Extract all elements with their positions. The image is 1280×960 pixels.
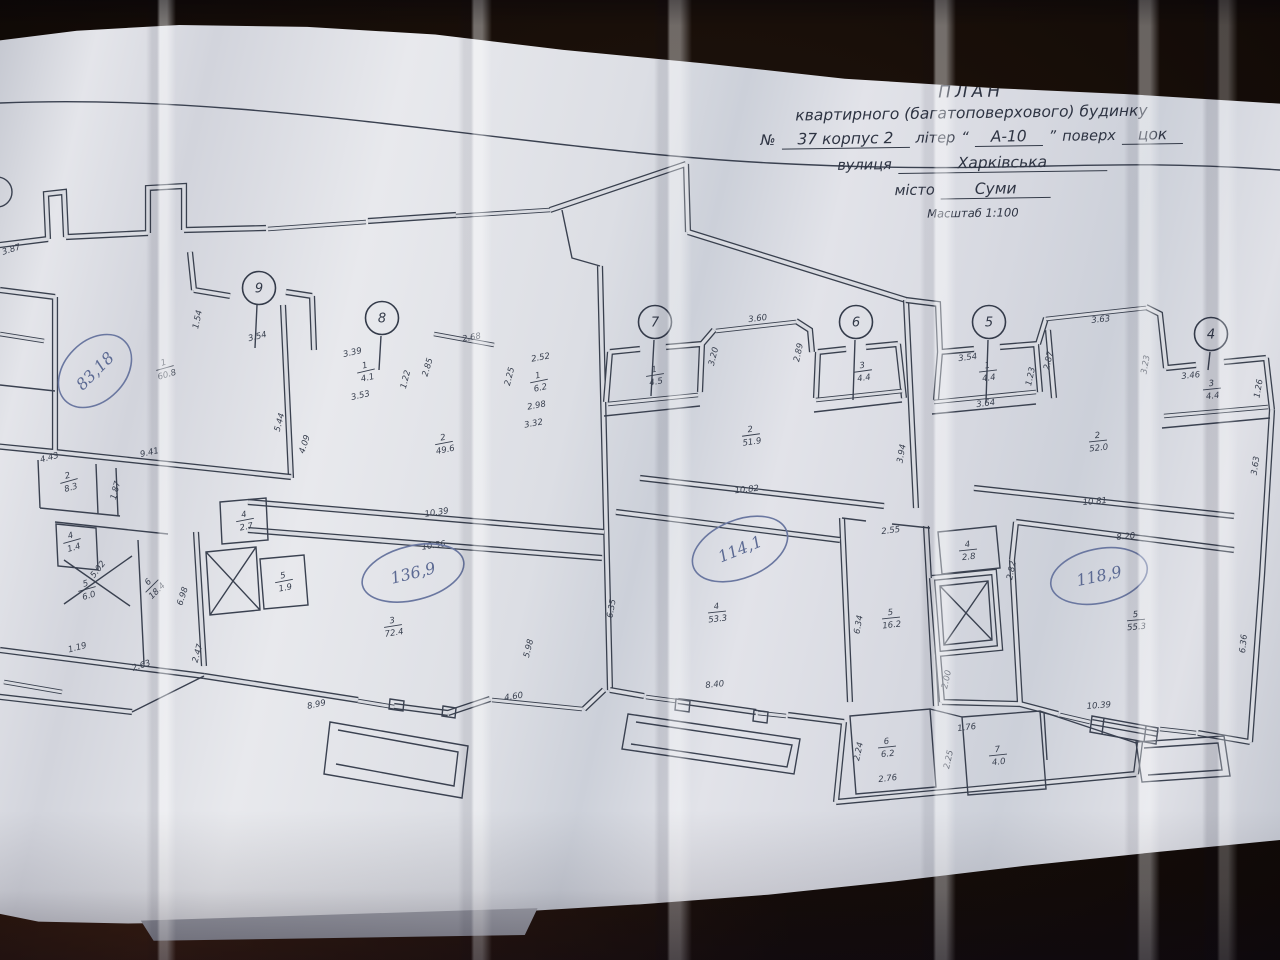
room-label: 372.4 (382, 615, 404, 640)
dimension-label: 3.46 (1181, 370, 1201, 382)
floor-value: цок (1122, 125, 1184, 145)
svg-text:4: 4 (713, 602, 719, 613)
room-label: 14.5 (645, 364, 666, 389)
room-label: 14.4 (978, 360, 999, 385)
svg-text:2: 2 (747, 425, 754, 436)
dimension-label: 3.63 (1250, 456, 1263, 476)
dimension-label: 3.23 (1139, 354, 1152, 374)
windows (0, 210, 1268, 733)
room-label: 42.7 (234, 508, 256, 534)
dimension-label: 9.41 (139, 446, 160, 460)
svg-text:8.3: 8.3 (63, 482, 79, 495)
svg-text:1: 1 (534, 371, 541, 382)
dimension-label: 3.94 (895, 443, 908, 463)
dimension-label: 5.98 (522, 638, 536, 659)
paper-sheet: 3.871.543.545.444.099.414.431.873.393.53… (0, 0, 1280, 960)
liter-value: А-10 (975, 127, 1043, 147)
room-label: 14.1 (355, 359, 378, 385)
axis-circle: 8 (366, 302, 399, 335)
svg-text:6: 6 (852, 316, 860, 331)
svg-text:5: 5 (887, 608, 893, 619)
svg-text:55.3: 55.3 (1127, 622, 1147, 634)
dimension-label: 8.99 (306, 698, 327, 712)
dimension-label: 2.89 (792, 342, 806, 363)
svg-text:6.2: 6.2 (881, 749, 896, 760)
dimension-label: 1.26 (1252, 378, 1265, 399)
axis-circle: 5 (973, 306, 1006, 339)
dimension-label: 6.34 (852, 614, 865, 634)
room-label: 42.8 (958, 539, 978, 563)
room-label: 516.2 (881, 607, 902, 631)
windows (0, 210, 1268, 733)
dimension-label: 2.24 (852, 741, 866, 762)
plan-subtitle: квартирного (багатоповерхового) будинку (741, 101, 1201, 125)
dimension-label: 6.36 (1238, 633, 1250, 653)
room-label: 51.9 (273, 569, 295, 595)
dimension-label: 3.32 (523, 417, 543, 430)
liter-quote-close: ” (1049, 129, 1057, 145)
street-value: Харківська (898, 152, 1108, 174)
dimension-label: 3.63 (1091, 314, 1111, 326)
svg-text:2: 2 (1094, 431, 1100, 442)
axis-circle: 9 (243, 272, 276, 305)
dimension-label: 2.85 (421, 357, 436, 378)
dimension-label: 8.40 (705, 679, 725, 691)
number-line: № 37 корпус 2 літер “ А-10 ” поверх цок (742, 125, 1202, 150)
photo-of-floor-plan: { "title_block": { "line1": "ПЛАН", "lin… (0, 0, 1280, 960)
axis-circle-partial (0, 177, 12, 207)
room-label: 618.4 (138, 572, 167, 601)
handwritten-total: 118,9 (1045, 539, 1152, 612)
svg-text:4.4: 4.4 (857, 373, 872, 385)
handwritten-total: 114,1 (683, 503, 797, 594)
dimension-label: 10.39 (1086, 700, 1111, 712)
svg-text:49.6: 49.6 (435, 444, 456, 458)
svg-text:7: 7 (651, 316, 660, 331)
room-label: 249.6 (433, 431, 456, 457)
dimension-label: 5.44 (273, 412, 288, 433)
svg-text:3: 3 (389, 616, 396, 627)
title-block: ПЛАН квартирного (багатоповерхового) буд… (741, 79, 1203, 223)
room-label: 555.3 (1126, 609, 1147, 633)
svg-text:6.2: 6.2 (533, 382, 548, 395)
street-line: вулиця Харківська (742, 151, 1202, 176)
room-label: 34.4 (1202, 378, 1222, 402)
street-label: вулиця (837, 157, 892, 174)
dimension-label: 2.25 (503, 366, 517, 387)
dimension-label: 2.52 (530, 351, 550, 364)
floor-label: поверх (1062, 128, 1116, 145)
city-value: Суми (941, 179, 1051, 200)
dimension-label: 2.25 (942, 749, 956, 770)
svg-text:8: 8 (378, 312, 386, 327)
svg-text:1: 1 (651, 365, 658, 376)
svg-text:6.0: 6.0 (81, 590, 97, 603)
dimension-label: 2.55 (881, 525, 901, 537)
room-label: 453.3 (707, 601, 728, 625)
liter-quote-open: “ (961, 130, 969, 146)
svg-text:2.8: 2.8 (962, 552, 977, 563)
dimension-label: 4.09 (297, 434, 312, 455)
room-label: 34.4 (853, 360, 874, 385)
svg-text:1: 1 (361, 361, 369, 372)
svg-text:3: 3 (859, 361, 866, 372)
dimension-label: 2.98 (526, 399, 547, 413)
svg-text:4.1: 4.1 (360, 372, 375, 385)
svg-text:118,9: 118,9 (1075, 562, 1124, 590)
svg-text:136,9: 136,9 (388, 558, 437, 588)
svg-text:5: 5 (1132, 610, 1138, 620)
svg-text:1: 1 (160, 358, 168, 369)
svg-text:2: 2 (64, 471, 72, 482)
axis-circle: 6 (840, 306, 873, 339)
svg-text:4: 4 (240, 510, 247, 521)
dimension-label: 6.35 (605, 598, 618, 618)
axis-circle: 7 (639, 306, 672, 339)
dimension-label: 10.81 (1082, 496, 1107, 508)
svg-text:5: 5 (82, 579, 90, 590)
svg-text:6: 6 (883, 737, 890, 748)
dimension-label: 3.20 (707, 346, 721, 367)
svg-text:83,18: 83,18 (72, 348, 118, 394)
svg-text:4.5: 4.5 (649, 376, 664, 388)
svg-text:4: 4 (964, 540, 970, 551)
dimension-label: 3.54 (958, 352, 978, 364)
dimension-label: 1.54 (191, 309, 205, 330)
dimension-label: 5.02 (89, 559, 109, 580)
svg-text:52.0: 52.0 (1089, 442, 1109, 454)
dimension-label: 2.82 (1005, 560, 1019, 581)
svg-text:4.4: 4.4 (982, 373, 997, 385)
svg-text:53.3: 53.3 (708, 613, 728, 625)
svg-text:4: 4 (67, 531, 75, 542)
dimension-label: 3.54 (247, 330, 268, 344)
svg-text:2: 2 (439, 433, 446, 444)
svg-text:9: 9 (255, 282, 263, 297)
room-label: 28.3 (58, 469, 82, 496)
svg-text:4: 4 (1207, 328, 1215, 343)
svg-text:16.2: 16.2 (882, 619, 902, 631)
room-label: 66.2 (877, 736, 897, 760)
svg-text:4.4: 4.4 (1206, 391, 1221, 402)
room-label: 74.0 (988, 744, 1008, 768)
svg-text:4.0: 4.0 (992, 757, 1007, 768)
number-label: № (760, 133, 775, 149)
liter-label: літер (915, 130, 955, 147)
dimension-label: 8.20 (1116, 531, 1136, 543)
svg-text:1.4: 1.4 (66, 542, 82, 555)
room-label: 252.0 (1088, 430, 1109, 454)
room-label: 41.4 (61, 529, 85, 556)
handwritten-total: 83,18 (44, 320, 146, 422)
city-label: місто (894, 183, 934, 200)
dimension-label: 6.98 (175, 585, 191, 607)
svg-text:114,1: 114,1 (715, 532, 765, 567)
walls (0, 164, 1272, 802)
dimension-label: 2.76 (878, 773, 899, 785)
building-number-value: 37 корпус 2 (781, 129, 909, 150)
svg-text:6: 6 (143, 577, 154, 588)
room-label: 251.9 (740, 424, 762, 449)
svg-text:7: 7 (994, 745, 1001, 756)
dimension-label: 1.22 (399, 369, 413, 390)
svg-text:1.9: 1.9 (278, 582, 293, 594)
svg-text:51.9: 51.9 (742, 436, 762, 449)
dimension-label: 3.39 (342, 346, 363, 360)
dimension-label: 1.19 (67, 641, 88, 656)
dimension-label: 1.23 (1024, 366, 1038, 387)
svg-text:1: 1 (984, 361, 991, 372)
room-label: 160.8 (153, 356, 178, 383)
svg-text:5: 5 (279, 571, 286, 582)
city-line: місто Суми (742, 177, 1202, 202)
svg-text:3: 3 (1208, 379, 1214, 390)
dimension-label: 3.53 (350, 389, 371, 403)
room-label: 16.2 (528, 369, 550, 395)
axis-circle: 4 (1195, 318, 1228, 351)
svg-text:5: 5 (985, 316, 993, 331)
dimension-label: 1.76 (957, 722, 978, 734)
dimension-label: 1.87 (109, 480, 123, 501)
svg-text:72.4: 72.4 (384, 627, 404, 640)
